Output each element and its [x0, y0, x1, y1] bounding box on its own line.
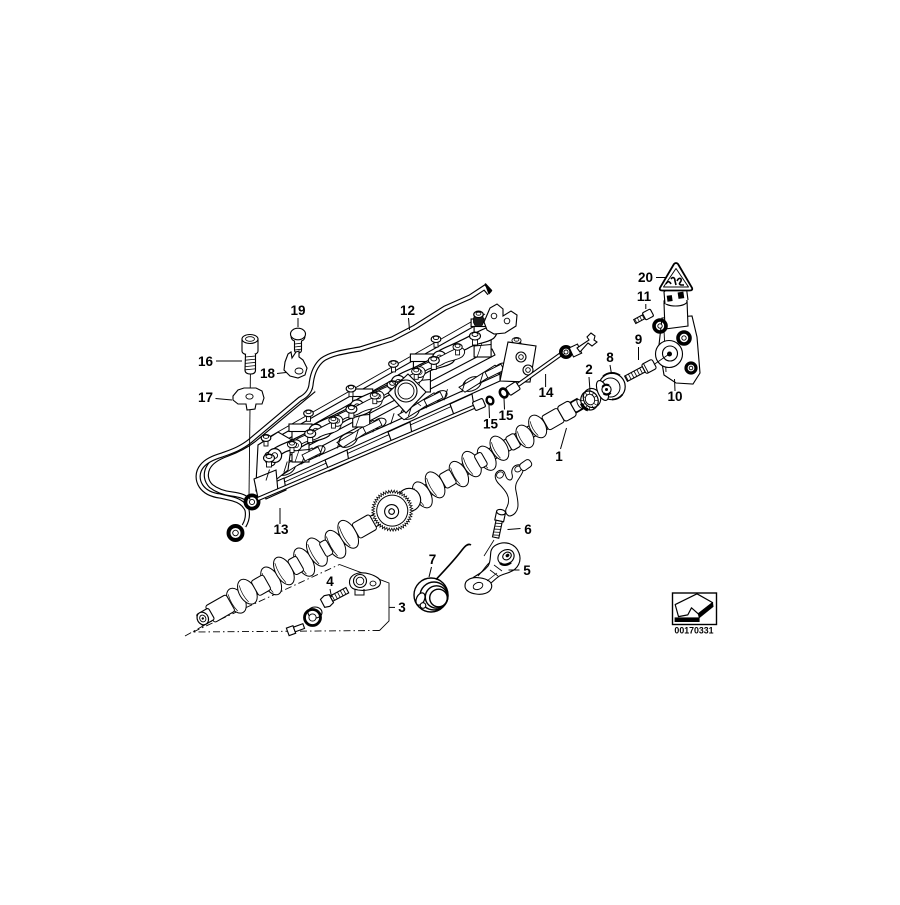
svg-text:9: 9: [635, 332, 643, 347]
svg-text:6: 6: [524, 522, 532, 537]
svg-text:12: 12: [400, 303, 415, 318]
svg-text:2: 2: [585, 362, 593, 377]
svg-text:17: 17: [198, 390, 213, 405]
svg-text:14: 14: [538, 385, 554, 400]
svg-text:19: 19: [290, 303, 305, 318]
svg-text:3: 3: [398, 600, 406, 615]
svg-text:5: 5: [523, 563, 531, 578]
svg-text:1: 1: [555, 449, 563, 464]
svg-text:4: 4: [326, 574, 334, 589]
svg-text:7: 7: [429, 552, 437, 567]
svg-text:20: 20: [638, 270, 653, 285]
svg-text:8: 8: [606, 350, 614, 365]
svg-text:15: 15: [498, 408, 514, 423]
svg-text:15: 15: [483, 417, 499, 432]
svg-text:16: 16: [198, 354, 214, 369]
svg-text:11: 11: [637, 289, 652, 304]
svg-text:10: 10: [667, 389, 682, 404]
svg-text:00170331: 00170331: [674, 626, 713, 636]
svg-text:18: 18: [260, 366, 276, 381]
svg-text:13: 13: [273, 522, 289, 537]
